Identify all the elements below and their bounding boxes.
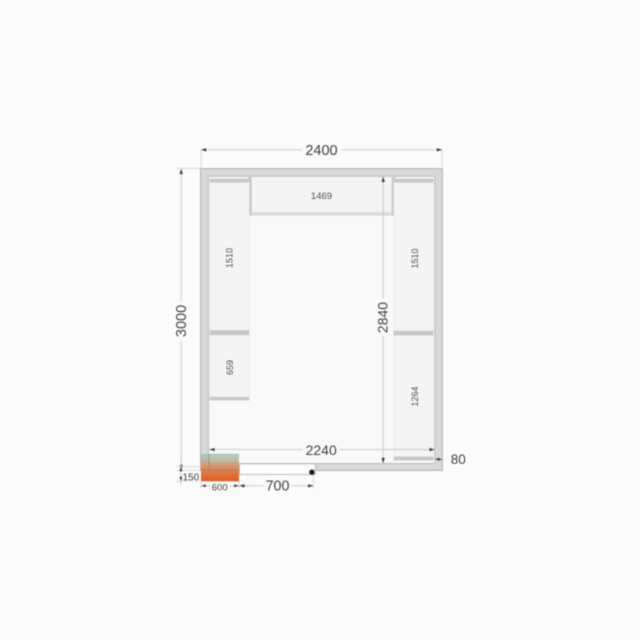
svg-text:700: 700 bbox=[266, 479, 290, 495]
svg-text:600: 600 bbox=[212, 483, 228, 494]
svg-text:659: 659 bbox=[225, 360, 235, 375]
svg-text:1510: 1510 bbox=[224, 248, 234, 268]
svg-text:2400: 2400 bbox=[305, 143, 337, 159]
svg-text:1264: 1264 bbox=[410, 386, 420, 406]
svg-text:1469: 1469 bbox=[311, 191, 332, 202]
svg-text:1510: 1510 bbox=[410, 248, 420, 268]
svg-text:2840: 2840 bbox=[375, 302, 391, 333]
svg-text:150: 150 bbox=[182, 473, 199, 484]
svg-text:2240: 2240 bbox=[306, 442, 337, 458]
svg-text:3000: 3000 bbox=[174, 305, 190, 337]
svg-text:80: 80 bbox=[451, 452, 466, 467]
